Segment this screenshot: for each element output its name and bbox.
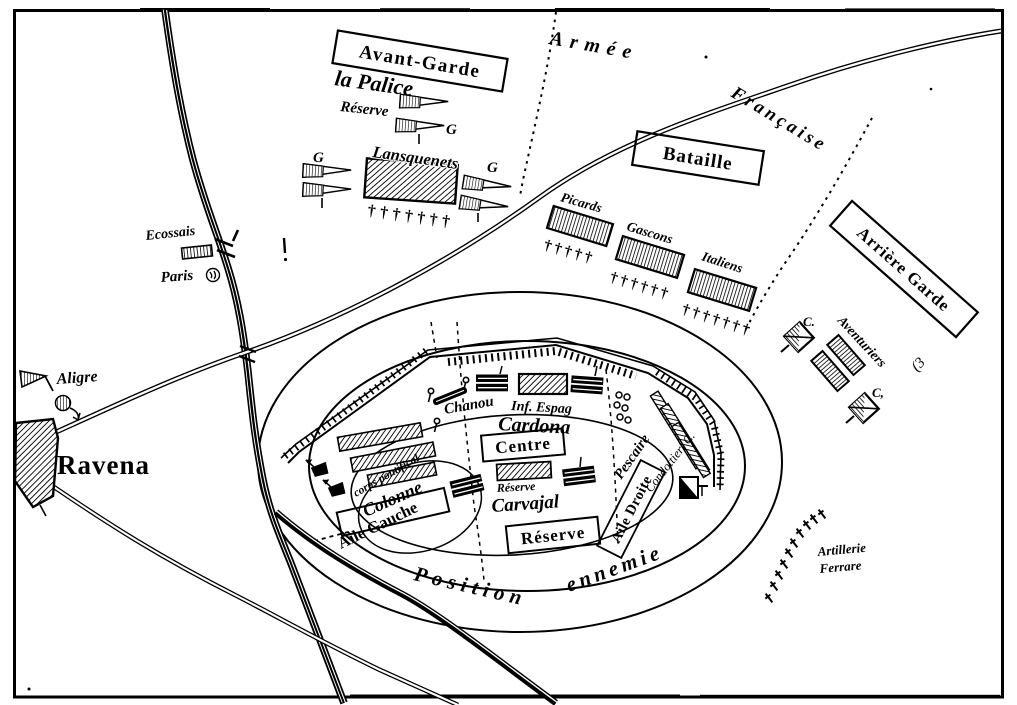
svg-text:C,: C, xyxy=(872,385,884,400)
svg-text:Ravena: Ravena xyxy=(57,450,150,480)
svg-text:C.: C. xyxy=(803,314,815,329)
svg-text:G: G xyxy=(487,160,498,176)
svg-text:Paris: Paris xyxy=(160,268,194,286)
svg-text:G: G xyxy=(313,150,324,166)
svg-text:Aligre: Aligre xyxy=(55,368,98,388)
svg-text:G: G xyxy=(446,122,457,138)
